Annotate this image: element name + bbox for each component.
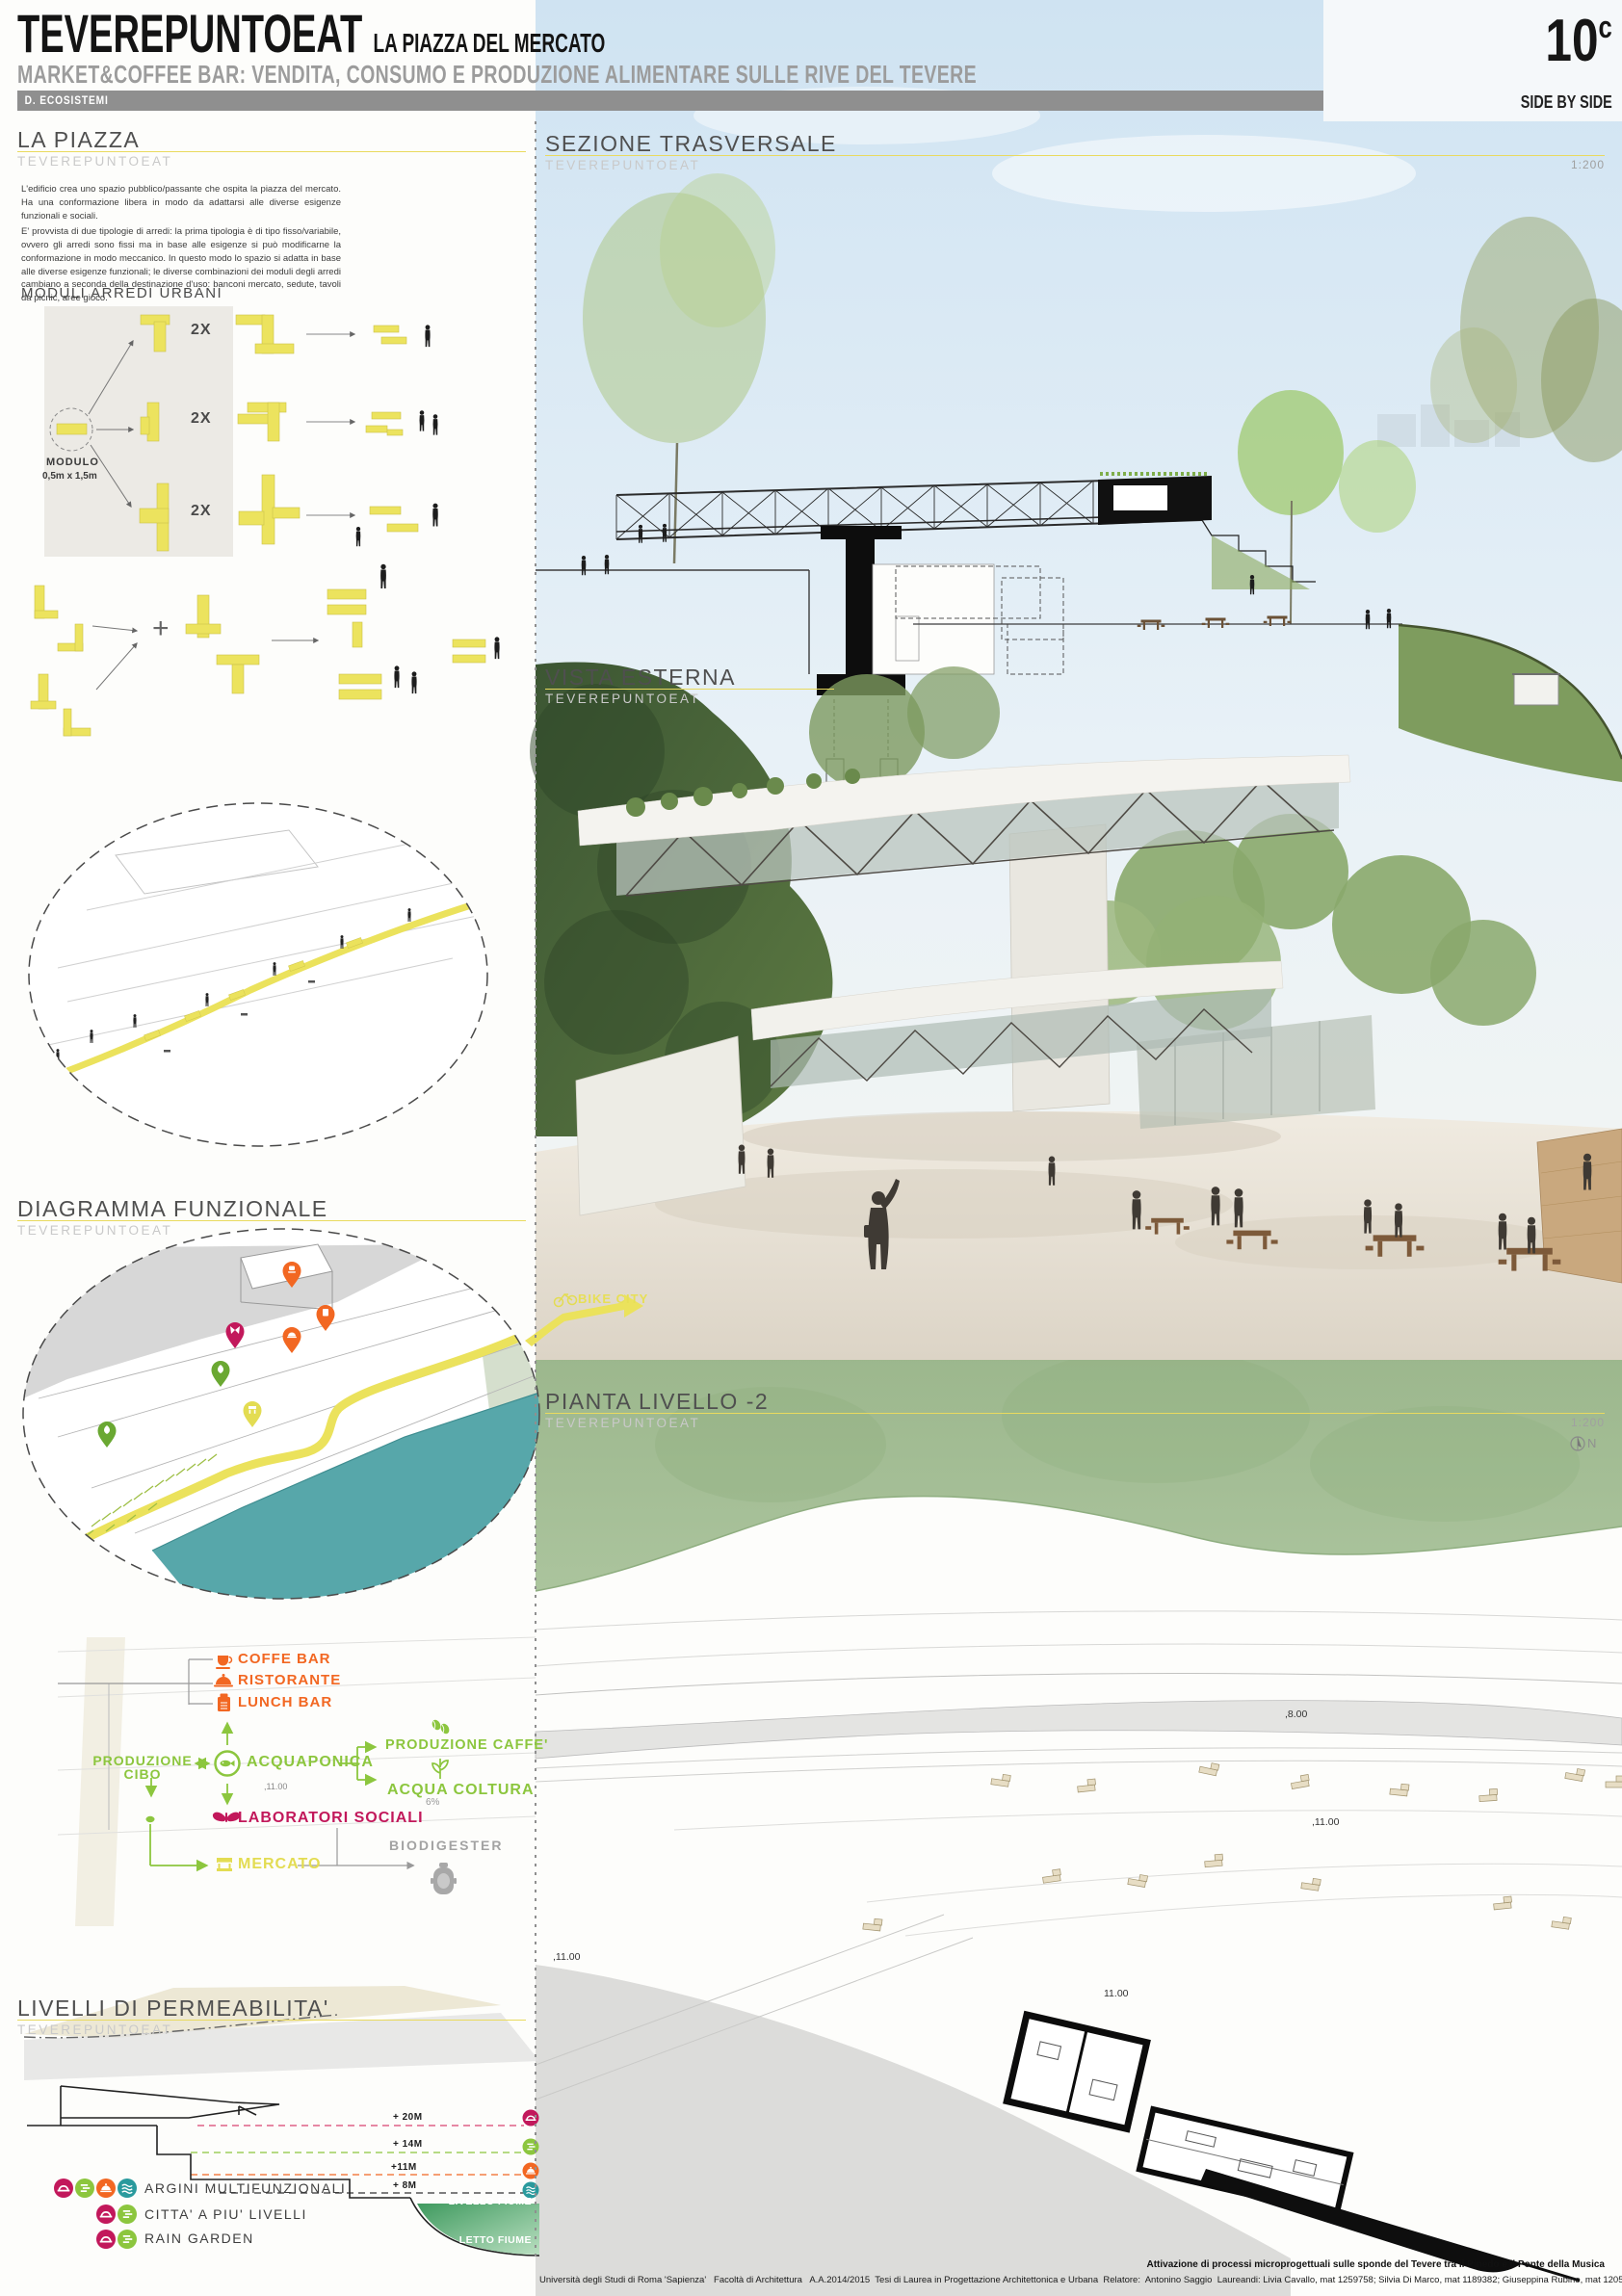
market-stall-icon xyxy=(217,1858,232,1871)
header-title-block: TEVEREPUNTOEAT LA PIAZZA DEL MERCATO xyxy=(17,4,882,64)
rule xyxy=(545,155,1605,156)
section-sub-vista: TEVEREPUNTOEAT xyxy=(545,691,700,706)
plus-sign: + xyxy=(152,613,170,645)
section-title-sezione: SEZIONE TRASVERSALE xyxy=(545,131,837,157)
multiplier-label: 2X xyxy=(191,410,212,428)
section-title-livelli: LIVELLI DI PERMEABILITA' xyxy=(17,1996,329,2022)
level-11m: +11M xyxy=(391,2162,417,2173)
moduli-title: MODULI ARREDI URBANI xyxy=(21,285,222,301)
flow-laboratori: LABORATORI SOCIALI xyxy=(238,1810,424,1827)
plan-label-11b: 11.00 xyxy=(1104,1988,1129,1999)
poster-graphics xyxy=(0,0,1622,2296)
flow-coffe-bar: COFFE BAR xyxy=(238,1651,331,1667)
plan-label-11c: ,11.00 xyxy=(553,1951,580,1963)
modulo-label: MODULO xyxy=(46,457,99,468)
food-dot-icon xyxy=(146,1816,155,1822)
intro-p1: L'edificio crea uno spazio pubblico/pass… xyxy=(21,183,341,222)
cloche-icon xyxy=(214,1674,233,1687)
section-title-diagramma: DIAGRAMMA FUNZIONALE xyxy=(17,1196,328,1222)
flow-acqua-pct: 6% xyxy=(426,1797,439,1808)
multiplier-label: 2X xyxy=(191,322,212,339)
footer-line2: Università degli Studi di Roma 'Sapienza… xyxy=(539,2275,1622,2285)
bike-city-label: BIKE CITY xyxy=(578,1291,648,1306)
acquaponica-fish-icon xyxy=(216,1752,240,1776)
legend-rain-garden: RAIN GARDEN xyxy=(144,2231,254,2246)
column-divider xyxy=(535,121,536,2257)
moduli-diagram xyxy=(44,306,438,557)
coffee-beans-icon xyxy=(431,1718,451,1735)
category-bar: D. ECOSISTEMI xyxy=(17,91,1323,111)
modulo-size: 0,5m x 1,5m xyxy=(42,471,97,482)
plant-icon xyxy=(432,1759,448,1779)
section-title-la-piazza: LA PIAZZA xyxy=(17,127,140,153)
legend-icons xyxy=(54,2179,137,2249)
combination-diagram xyxy=(31,564,500,736)
rule xyxy=(17,1220,526,1221)
flow-ristorante: RISTORANTE xyxy=(238,1672,341,1688)
flow-acqua-coltura: ACQUA COLTURA xyxy=(387,1782,535,1799)
rule xyxy=(545,689,834,690)
legend-citta: CITTA' A PIU' LIVELLI xyxy=(144,2206,307,2222)
plan-label-8: ,8.00 xyxy=(1285,1709,1307,1720)
level-20m: + 20M xyxy=(393,2112,423,2123)
level-14m: + 14M xyxy=(393,2139,423,2150)
north-label: N xyxy=(1587,1436,1596,1450)
flow-produzione-2: CIBO xyxy=(89,1766,196,1782)
section-sub-la-piazza: TEVEREPUNTOEAT xyxy=(17,154,172,169)
pianta-scale: 1:200 xyxy=(1531,1416,1605,1429)
rule xyxy=(545,1413,1605,1414)
flow-level-label: ,11.00 xyxy=(264,1782,287,1791)
rule xyxy=(17,2020,526,2021)
letto-fiume-label: LETTO FIUME xyxy=(424,2234,532,2246)
section-title-pianta: PIANTA LIVELLO -2 xyxy=(545,1389,769,1415)
section-sub-diagramma: TEVEREPUNTOEAT xyxy=(17,1223,172,1238)
header-subtitle: MARKET&COFFEE BAR: VENDITA, CONSUMO E PR… xyxy=(17,60,1296,90)
page-title: TEVEREPUNTOEAT xyxy=(17,3,362,64)
lunch-bag-icon xyxy=(218,1694,230,1712)
footer-line1: Attivazione di processi microprogettuali… xyxy=(1060,2259,1605,2270)
category-label: D. ECOSISTEMI xyxy=(17,91,1128,111)
flow-lunch-bar: LUNCH BAR xyxy=(238,1694,332,1710)
series-label: SIDE BY SIDE xyxy=(1323,92,1612,113)
plan-label-11a: ,11.00 xyxy=(1312,1816,1339,1828)
section-sub-pianta: TEVEREPUNTOEAT xyxy=(545,1416,700,1430)
flow-acquaponica: ACQUAPONICA xyxy=(247,1754,374,1771)
flow-biodigester: BIODIGESTER xyxy=(389,1838,503,1853)
board-number: 10c xyxy=(1323,10,1612,71)
page-title-suffix: LA PIAZZA DEL MERCATO xyxy=(373,28,605,58)
legend-argini: ARGINI MULTIFUNZIONALI xyxy=(144,2180,346,2196)
livello-fiume-label: LIVELLO FIUME xyxy=(424,2196,532,2207)
axon-ellipse xyxy=(29,803,487,1146)
rule xyxy=(17,151,526,152)
poster: TEVEREPUNTOEAT LA PIAZZA DEL MERCATO MAR… xyxy=(0,0,1622,2296)
biodigester-icon xyxy=(431,1863,457,1894)
butterfly-icon xyxy=(213,1813,240,1822)
level-8m: + 8M xyxy=(393,2180,417,2191)
sezione-scale: 1:200 xyxy=(1531,158,1605,171)
flow-produzione-caffe: PRODUZIONE CAFFE' xyxy=(385,1737,548,1753)
section-sub-livelli: TEVEREPUNTOEAT xyxy=(17,2022,172,2037)
multiplier-label: 2X xyxy=(191,503,212,520)
board-number-value: 10 xyxy=(1546,8,1599,74)
board-letter-value: c xyxy=(1599,10,1612,44)
coffee-cup-icon xyxy=(216,1656,232,1669)
section-sub-sezione: TEVEREPUNTOEAT xyxy=(545,158,700,172)
section-title-vista: VISTA ESTERNA xyxy=(545,665,736,691)
flow-mercato: MERCATO xyxy=(238,1856,321,1873)
